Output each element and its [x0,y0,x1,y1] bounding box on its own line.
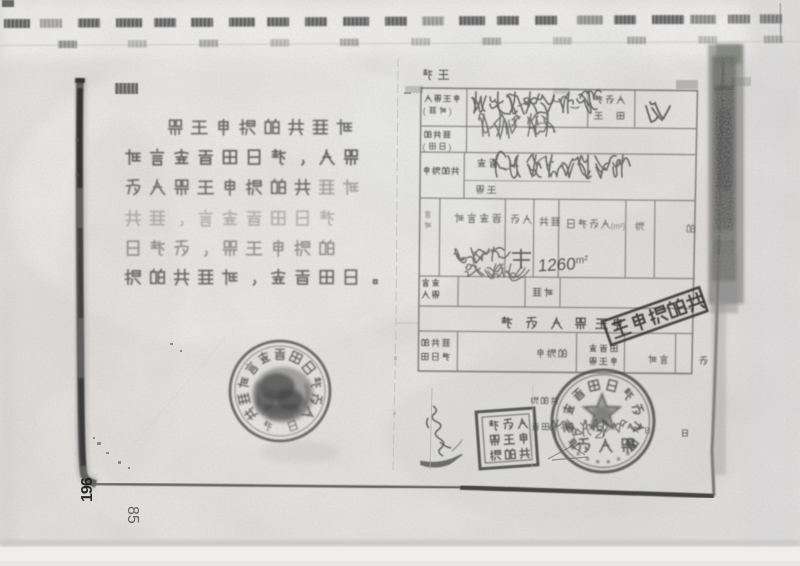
svg-text:85: 85 [124,506,141,524]
svg-text:(: ( [422,142,425,152]
svg-text:(: ( [423,106,426,116]
svg-text:): ) [449,106,452,116]
svg-text:): ) [448,142,451,152]
svg-text:(m²): (m²) [611,222,626,231]
svg-text:196: 196 [79,477,96,502]
